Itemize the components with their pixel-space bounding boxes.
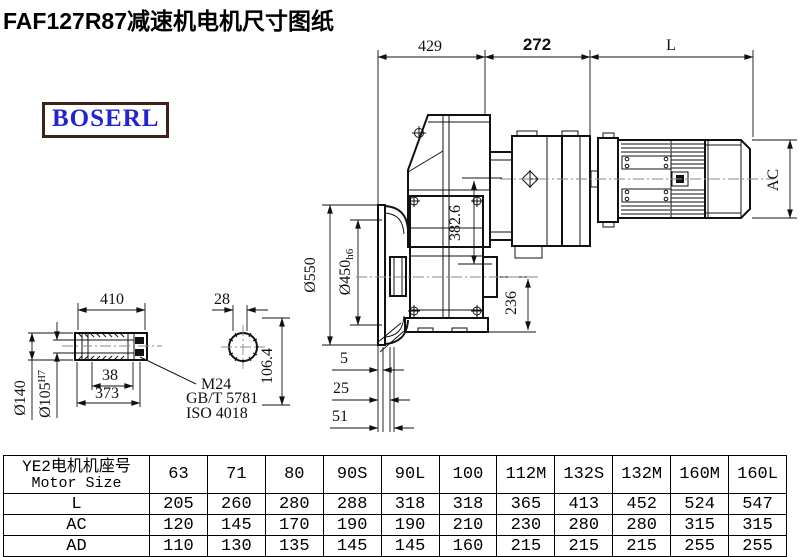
table-row: L205260280288318318365413452524547 [4,494,787,515]
dim-phi140: Ø140 [12,380,29,416]
table-row: AD110130135145145160215215215255255 [4,536,787,557]
shaft-hatch [78,333,124,360]
output-flange [377,205,408,352]
row-label: L [4,494,150,515]
dim-phi450: Ø450h6 [337,248,356,295]
table-cell: 547 [729,494,787,515]
table-cell: 315 [729,515,787,536]
table-cell: 145 [381,536,439,557]
table-cell: 280 [555,515,613,536]
table-cell: 120 [150,515,208,536]
dim-28: 28 [214,291,230,308]
table-cell: 145 [207,515,265,536]
dim-L: L [666,37,676,54]
table-cell: 413 [555,494,613,515]
table-cell: 315 [671,515,729,536]
dim-phi105: Ø105H7 [37,370,54,418]
table-cell: 318 [439,494,497,515]
flange-diameter-dims: Ø550 Ø450h6 [302,205,382,345]
table-cell: 160 [439,536,497,557]
dim-5: 5 [340,350,348,367]
table-cell: 255 [671,536,729,557]
dim-38: 38 [102,367,118,384]
table-cell: 288 [323,494,381,515]
column-header: 63 [150,456,208,494]
column-header: 160M [671,456,729,494]
table-cell: 230 [497,515,555,536]
column-header: 112M [497,456,555,494]
table-cell: 210 [439,515,497,536]
column-header: 90L [381,456,439,494]
table-cell: 365 [497,494,555,515]
column-header: 90S [323,456,381,494]
dim-phi550: Ø550 [302,257,319,293]
table-cell: 452 [613,494,671,515]
column-header: 160L [729,456,787,494]
ac-dim: AC [752,140,797,218]
table-cell: 170 [265,515,323,536]
table-cell: 205 [150,494,208,515]
height-dims: 382.6 236 [447,178,536,332]
table-cell: 215 [555,536,613,557]
row-label: AD [4,536,150,557]
size-table-body: YE2电机机座号Motor Size63718090S90L100112M132… [4,456,787,557]
column-header: 71 [207,456,265,494]
row-label: AC [4,515,150,536]
table-cell: 255 [729,536,787,557]
dim-236: 236 [503,291,520,315]
callout-iso: ISO 4018 [186,405,248,422]
motor-size-header: YE2电机机座号Motor Size [4,456,150,494]
column-header: 100 [439,456,497,494]
size-table: YE2电机机座号Motor Size63718090S90L100112M132… [3,455,787,557]
table-cell: 135 [265,536,323,557]
flange-face-dims: 5 25 51 [330,205,414,432]
input-adapter [490,131,590,258]
dim-373: 373 [95,385,119,402]
shaft-detail: 410 Ø140 Ø105H7 38 373 M24 [12,291,258,422]
drawing-page: FAF127R87减速机电机尺寸图纸 BOSERL 429 272 L [0,0,800,557]
top-dimension-chain: 429 272 L [378,35,753,205]
table-cell: 130 [207,536,265,557]
table-cell: 190 [381,515,439,536]
dim-51: 51 [332,408,348,425]
table-cell: 215 [497,536,555,557]
column-header: 132S [555,456,613,494]
table-cell: 215 [613,536,671,557]
table-cell: 280 [613,515,671,536]
table-cell: 280 [265,494,323,515]
table-cell: 145 [323,536,381,557]
table-cell: 318 [381,494,439,515]
dim-410: 410 [100,291,124,308]
dim-106.4: 106.4 [259,348,276,384]
dim-382.6: 382.6 [447,205,464,241]
table-cell: 260 [207,494,265,515]
table-cell: 110 [150,536,208,557]
column-header: 132M [613,456,671,494]
table-cell: 190 [323,515,381,536]
table-cell: 524 [671,494,729,515]
dim-25: 25 [333,380,349,397]
column-header: 80 [265,456,323,494]
dimension-drawing: 429 272 L [0,0,800,455]
motor [591,133,750,227]
bolt-holes [408,126,483,317]
dim-AC: AC [765,169,782,191]
dim-429: 429 [418,38,442,55]
dim-272: 272 [523,35,551,54]
table-row: AC120145170190190210230280280315315 [4,515,787,536]
